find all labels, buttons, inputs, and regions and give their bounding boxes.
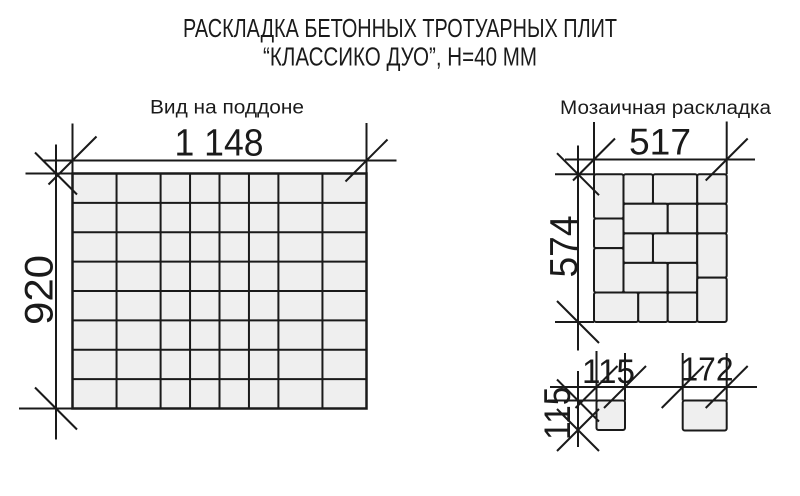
svg-text:Мозаичная раскладка: Мозаичная раскладка <box>560 98 771 119</box>
svg-text:115: 115 <box>582 353 635 391</box>
svg-text:РАСКЛАДКА БЕТОННЫХ ТРОТУАРНЫХ: РАСКЛАДКА БЕТОННЫХ ТРОТУАРНЫХ ПЛИТ <box>183 15 617 43</box>
svg-text:Вид на поддоне: Вид на поддоне <box>150 98 304 119</box>
svg-text:1 148: 1 148 <box>175 123 264 165</box>
svg-text:920: 920 <box>18 255 62 325</box>
svg-text:“КЛАССИКО ДУО”, Н=40 ММ: “КЛАССИКО ДУО”, Н=40 ММ <box>263 44 537 72</box>
svg-text:172: 172 <box>681 351 734 388</box>
svg-text:517: 517 <box>629 122 691 163</box>
svg-text:115: 115 <box>536 387 578 441</box>
svg-text:574: 574 <box>543 216 586 278</box>
